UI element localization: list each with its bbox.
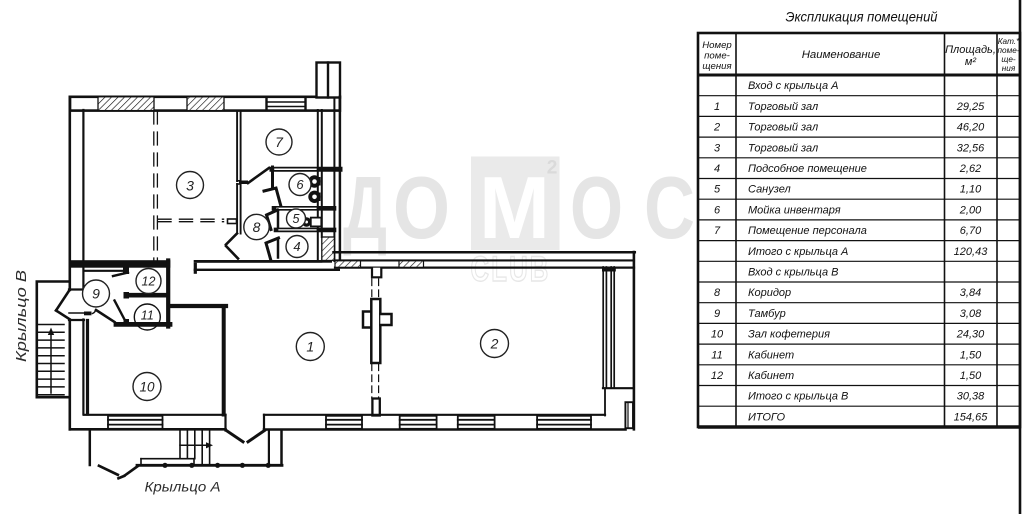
svg-text:11: 11: [141, 309, 154, 323]
svg-text:2: 2: [490, 336, 499, 352]
svg-text:М: М: [479, 158, 550, 257]
svg-text:24,30: 24,30: [956, 329, 985, 341]
svg-text:4: 4: [293, 239, 300, 254]
svg-text:30,38: 30,38: [957, 391, 985, 403]
svg-text:Тамбур: Тамбур: [748, 308, 786, 320]
svg-text:ния: ния: [1002, 64, 1016, 73]
svg-text:3: 3: [714, 142, 721, 154]
svg-text:1: 1: [306, 339, 314, 355]
svg-text:Крыльцо В: Крыльцо В: [13, 270, 30, 362]
svg-text:Крыльцо А: Крыльцо А: [145, 480, 221, 495]
svg-text:2,62: 2,62: [959, 163, 981, 175]
svg-text:8: 8: [253, 219, 261, 235]
svg-text:Зал кофетерия: Зал кофетерия: [748, 329, 830, 341]
svg-text:3,84: 3,84: [960, 287, 981, 299]
svg-text:10: 10: [139, 380, 155, 395]
svg-text:5: 5: [714, 184, 721, 196]
svg-text:1,50: 1,50: [960, 370, 982, 382]
svg-text:2: 2: [713, 122, 720, 134]
svg-text:м²: м²: [965, 56, 977, 68]
svg-text:Помещение персонала: Помещение персонала: [748, 225, 867, 237]
svg-text:С: С: [644, 158, 695, 257]
svg-text:Мойка инвентаря: Мойка инвентаря: [748, 204, 841, 216]
svg-text:12: 12: [711, 370, 723, 382]
svg-text:Коридор: Коридор: [748, 287, 791, 299]
svg-text:9: 9: [714, 308, 720, 320]
svg-text:1: 1: [714, 101, 720, 113]
svg-text:2,00: 2,00: [959, 204, 982, 216]
svg-text:3,08: 3,08: [960, 308, 982, 320]
svg-text:Экспликация помещений: Экспликация помещений: [786, 10, 938, 25]
svg-text:46,20: 46,20: [957, 122, 985, 134]
svg-text:Торговый зал: Торговый зал: [748, 142, 818, 154]
svg-text:11: 11: [711, 349, 722, 361]
svg-text:120,43: 120,43: [954, 246, 989, 258]
svg-text:6: 6: [296, 177, 304, 192]
svg-text:поме-: поме-: [998, 46, 1020, 55]
svg-text:154,65: 154,65: [954, 411, 989, 423]
svg-text:Кабинет: Кабинет: [748, 349, 794, 361]
svg-text:7: 7: [275, 134, 284, 150]
svg-text:8: 8: [714, 287, 721, 299]
svg-text:1,10: 1,10: [960, 184, 982, 196]
svg-text:3: 3: [186, 178, 194, 194]
svg-text:Номер: Номер: [702, 40, 732, 51]
svg-text:6,70: 6,70: [960, 225, 982, 237]
svg-text:Площадь,: Площадь,: [945, 44, 996, 56]
svg-text:ще-: ще-: [1001, 55, 1016, 64]
svg-text:Итого с крыльца А: Итого с крыльца А: [748, 246, 848, 258]
svg-text:CLUB: CLUB: [471, 250, 551, 289]
svg-text:Кабинет: Кабинет: [748, 370, 794, 382]
svg-text:ИТОГО: ИТОГО: [748, 411, 786, 423]
svg-text:Итого с крыльца В: Итого с крыльца В: [748, 391, 848, 403]
svg-text:О: О: [570, 158, 623, 257]
svg-text:Торговый зал: Торговый зал: [748, 122, 818, 134]
svg-text:29,25: 29,25: [956, 101, 985, 113]
svg-text:6: 6: [714, 204, 721, 216]
svg-text:Д: Д: [343, 158, 387, 257]
svg-text:Кат.*: Кат.*: [998, 37, 1020, 46]
svg-text:2: 2: [547, 158, 558, 179]
svg-text:10: 10: [711, 329, 724, 341]
svg-text:Вход с крыльца А: Вход с крыльца А: [748, 80, 838, 92]
svg-text:12: 12: [142, 275, 156, 289]
svg-text:Наименование: Наименование: [802, 49, 881, 61]
svg-text:Торговый зал: Торговый зал: [748, 101, 818, 113]
svg-text:Санузел: Санузел: [748, 184, 791, 196]
svg-text:О: О: [393, 158, 450, 257]
svg-text:Вход с крыльца В: Вход с крыльца В: [748, 267, 838, 279]
svg-text:7: 7: [714, 225, 721, 237]
svg-text:9: 9: [92, 286, 100, 302]
svg-text:5: 5: [293, 212, 300, 226]
svg-text:Подсобное помещение: Подсобное помещение: [748, 163, 867, 175]
svg-text:поме-: поме-: [704, 51, 730, 62]
svg-text:1,50: 1,50: [960, 349, 982, 361]
svg-text:32,56: 32,56: [957, 142, 985, 154]
svg-text:4: 4: [714, 163, 720, 175]
svg-text:щения: щения: [702, 61, 731, 72]
